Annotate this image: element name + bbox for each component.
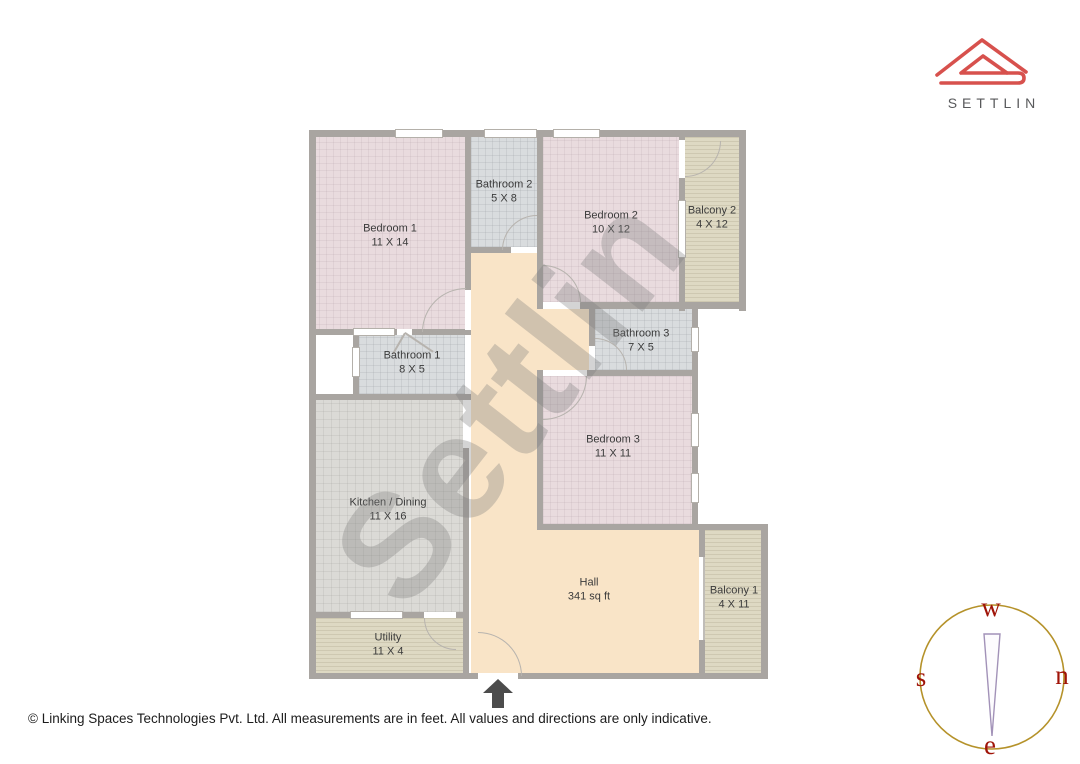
wall-kitchen-top xyxy=(309,394,471,400)
compass-east-label: e xyxy=(984,730,996,760)
wall-left xyxy=(309,130,316,679)
wall-bottom-west xyxy=(309,673,478,679)
settlin-house-icon xyxy=(930,30,1034,92)
label-bedroom-2: Bedroom 210 X 12 xyxy=(584,209,638,238)
window-bedroom2-top xyxy=(553,129,600,138)
compass-west-label: w xyxy=(981,592,1001,622)
wall-bath2-right xyxy=(537,130,543,253)
wall-balc2-left-b xyxy=(679,178,685,200)
wall-bed2-bottom-b xyxy=(580,302,746,309)
window-bedroom1-south xyxy=(353,328,395,336)
wall-bath2-left xyxy=(465,130,471,253)
label-kitchen: Kitchen / Dining11 X 16 xyxy=(349,496,426,525)
wall-right-top xyxy=(739,130,746,311)
floor-plan-page: { "brand": { "name": "SETTLIN", "logo_ic… xyxy=(0,0,1080,764)
window-bedroom3-east-2 xyxy=(691,473,699,503)
room-hall-passage xyxy=(471,302,589,370)
wall-bed3-top-b xyxy=(587,370,698,376)
wall-bed3-bottom xyxy=(537,524,768,530)
wall-balc2-left-a xyxy=(679,130,685,140)
wall-east-mid-b xyxy=(692,352,698,413)
label-bathroom-2: Bathroom 25 X 8 xyxy=(476,178,533,207)
window-bedroom1-top xyxy=(395,129,443,138)
window-bedroom3-east-1 xyxy=(691,413,699,447)
compass-south-label: s xyxy=(916,662,927,692)
wall-kitchen-right xyxy=(463,448,469,612)
door-gap-kitchen xyxy=(463,400,469,448)
window-bathroom3-east xyxy=(691,327,699,352)
compass-rose-icon: w s n e xyxy=(905,588,1080,764)
label-bathroom-3: Bathroom 37 X 5 xyxy=(613,327,670,356)
label-balcony-1: Balcony 14 X 11 xyxy=(710,584,758,613)
footer-disclaimer: © Linking Spaces Technologies Pvt. Ltd. … xyxy=(28,711,712,726)
label-bedroom-1: Bedroom 111 X 14 xyxy=(363,222,417,251)
wall-bottom-east xyxy=(518,673,768,679)
wall-utility-right xyxy=(463,618,469,679)
brand-name: SETTLIN xyxy=(944,95,1044,111)
label-utility: Utility11 X 4 xyxy=(373,631,404,660)
label-balcony-2: Balcony 24 X 12 xyxy=(688,204,736,233)
label-bathroom-1: Bathroom 18 X 5 xyxy=(384,349,441,378)
entrance-arrow-icon xyxy=(483,679,513,709)
wall-balc1-left-a xyxy=(699,530,705,557)
window-utility-top xyxy=(350,611,403,619)
label-bedroom-3: Bedroom 311 X 11 xyxy=(586,433,640,462)
wall-corridor-left xyxy=(465,250,471,290)
wall-balc1-left-b xyxy=(699,640,705,679)
sliding-door-balcony1 xyxy=(703,557,705,640)
window-balcony2-door xyxy=(678,200,686,258)
window-bathroom2-top xyxy=(484,129,537,138)
wall-balc2-left-c xyxy=(679,258,685,311)
wall-right-bottom xyxy=(761,524,768,679)
window-bathroom1-west xyxy=(352,347,360,377)
door-gap-bedroom2 xyxy=(543,302,580,309)
label-hall: Hall341 sq ft xyxy=(568,576,610,605)
compass-north-label: n xyxy=(1055,660,1069,690)
wall-east-mid-a xyxy=(692,302,698,327)
wall-east-mid-c xyxy=(692,447,698,473)
